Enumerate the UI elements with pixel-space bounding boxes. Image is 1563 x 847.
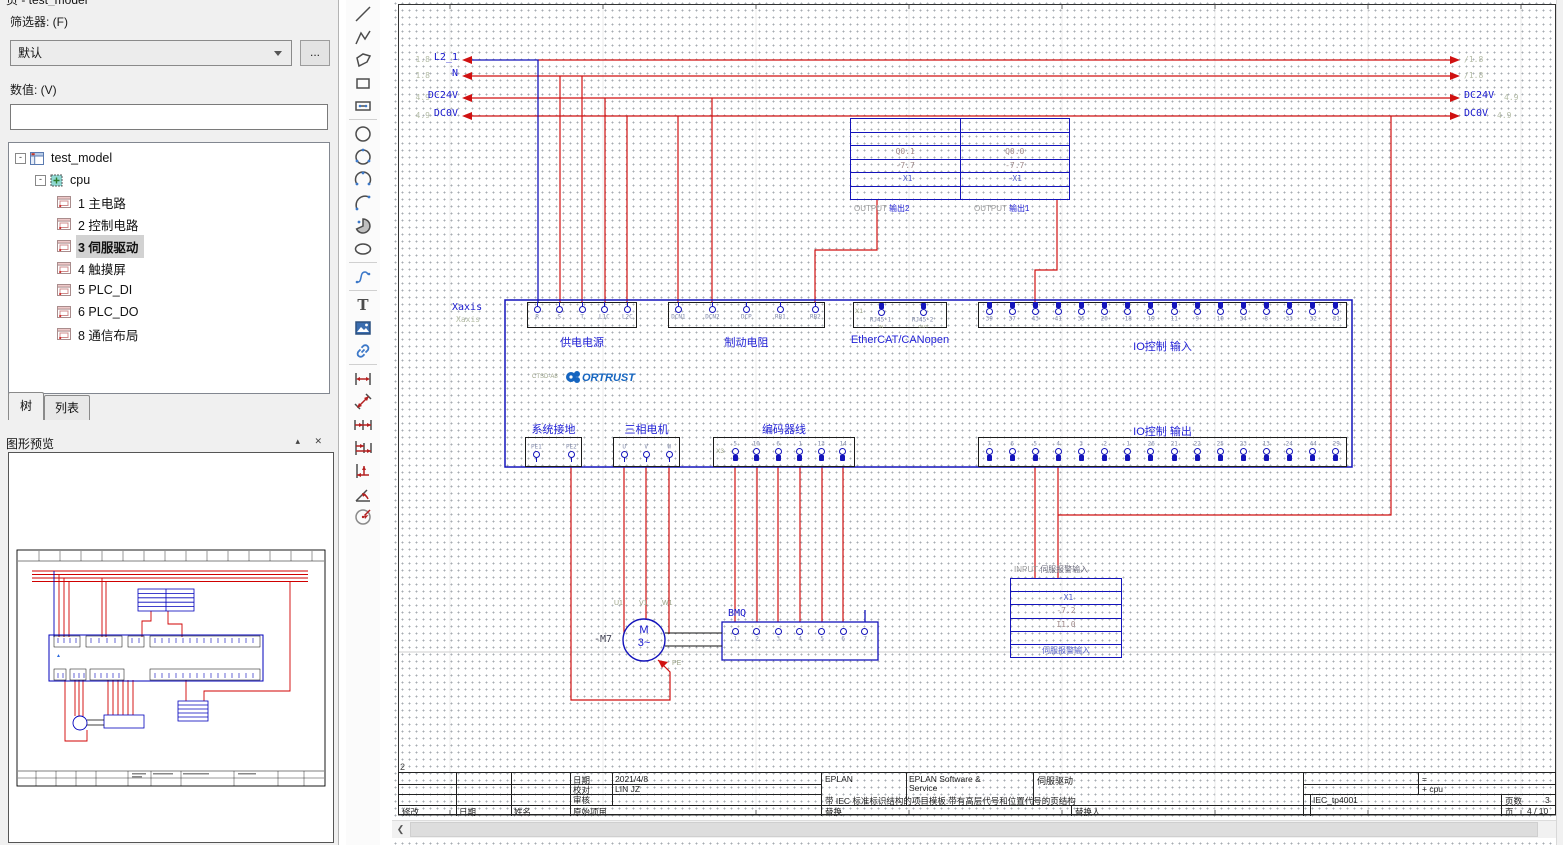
terminal[interactable]: 6 — [771, 440, 785, 461]
preview-panel-header: 图形预览 ▴ ✕ — [0, 434, 338, 452]
tree-item-page-6[interactable]: 6 PLC_DO — [15, 301, 329, 323]
terminal[interactable]: 1 — [728, 628, 742, 643]
terminal[interactable]: 5 — [1028, 440, 1042, 461]
terminal[interactable]: PE2 — [564, 443, 578, 462]
tree-item-page-4[interactable]: 4 触摸屏 — [15, 257, 329, 279]
terminal[interactable]: 18 — [1121, 302, 1135, 323]
schematic-canvas[interactable]: 1.8 1.8 4.9 4.9 L2_1 N DC24V DC0V /1.8 /… — [392, 0, 1563, 845]
gear-logo-icon — [564, 369, 582, 385]
terminal[interactable]: 2 — [1098, 440, 1112, 461]
plc-device: -7.7 — [851, 160, 960, 174]
terminal[interactable]: 10 — [1213, 302, 1227, 323]
terminal[interactable]: 13 — [814, 440, 828, 461]
tab-tree[interactable]: 树 — [8, 392, 44, 420]
potential-ref: 4.9 — [1497, 111, 1511, 120]
terminal[interactable]: 10 — [750, 440, 764, 461]
terminal-strip-io-input: 393743413520181911910348333231 — [978, 302, 1347, 323]
tool-image-icon[interactable] — [350, 316, 376, 339]
value-label: 数值: (V) — [10, 81, 57, 98]
tool-polyline-icon[interactable] — [350, 25, 376, 48]
terminal[interactable]: 6 — [1005, 440, 1019, 461]
terminal[interactable]: L1C — [598, 302, 612, 321]
structure-icon — [50, 174, 63, 187]
terminal-strip-encoder-cable: 510611314 — [713, 440, 855, 461]
tree-item-cpu[interactable]: - cpu — [15, 169, 329, 191]
terminal[interactable]: 7 — [982, 440, 996, 461]
terminal[interactable]: 26 — [1144, 440, 1158, 461]
terminal[interactable]: T — [575, 302, 589, 321]
terminal[interactable]: 19 — [1144, 302, 1158, 323]
terminal[interactable]: 9 — [1190, 302, 1204, 323]
terminal[interactable]: RB2 — [808, 302, 822, 321]
tool-polygon-icon[interactable] — [350, 48, 376, 71]
brand-logo: ORTRUST — [564, 368, 635, 386]
potential-label-dc0v[interactable]: DC0V — [406, 108, 458, 119]
preview-thumbnail: ▲ — [9, 453, 333, 842]
tool-text-icon[interactable]: T — [350, 293, 376, 316]
filter-dropdown-value: 默认 — [18, 46, 42, 60]
potential-ref: /1.8 — [1464, 55, 1483, 64]
potential-label-n[interactable]: N — [406, 68, 458, 79]
plc-terminal: -X1 — [961, 173, 1070, 187]
tool-dimension-aligned-icon[interactable] — [350, 390, 376, 413]
value-input[interactable] — [10, 104, 328, 130]
terminal-strip-brake: DCN1DCN2DCPRB1RB2 — [668, 302, 825, 321]
terminal[interactable]: 2 — [750, 628, 764, 643]
terminal[interactable]: 3 — [1075, 440, 1089, 461]
terminal[interactable]: 7 — [858, 628, 872, 643]
terminal[interactable]: 31 — [1329, 302, 1343, 323]
graphics-toolbar: T — [346, 0, 380, 845]
terminal[interactable]: PE1 — [529, 443, 543, 462]
terminal[interactable]: 33 — [1283, 302, 1297, 323]
terminal[interactable]: 35 — [1075, 302, 1089, 323]
tool-spline-icon[interactable] — [350, 265, 376, 288]
terminal[interactable]: 4 — [793, 628, 807, 643]
terminal[interactable]: 5 — [815, 628, 829, 643]
tool-dimension-linear-icon[interactable] — [350, 367, 376, 390]
plc-input-block[interactable]: -X1 -7.2 I1.0 伺服报警输入 — [1010, 578, 1122, 658]
terminal[interactable]: DCP — [740, 302, 754, 321]
plc-device: -7.2 — [1011, 605, 1121, 618]
tool-circle-3-point-icon[interactable] — [350, 145, 376, 168]
potential-label-dc24v[interactable]: DC24V — [406, 90, 458, 101]
plc-output-label: OUTPUT 输出2 — [854, 203, 909, 214]
tab-list[interactable]: 列表 — [44, 395, 90, 420]
page-tree: - test_model - cpu 1 主电路 2 控制电路 3 伺服驱动 4… — [8, 142, 330, 394]
plc-output-block[interactable]: Q0.1 -7.7 -X1 Q0.0 -7.7 -X1 — [850, 118, 1070, 200]
connector-title: 编码器线 — [713, 421, 855, 437]
potential-label-dc0v-right[interactable]: DC0V — [1464, 108, 1488, 119]
terminal[interactable]: L2C — [620, 302, 634, 321]
connector-title: 制动电阻 — [668, 334, 825, 350]
filter-dropdown[interactable]: 默认 — [10, 40, 292, 66]
plc-terminal: -X1 — [851, 173, 960, 187]
terminal[interactable]: 1 — [793, 440, 807, 461]
motor-symbol-text: M3~ — [632, 624, 656, 650]
title-block: 日期 2021/4/8 校对 LIN JZ 审核 修改 日期 姓名 原始项目 E… — [398, 772, 1556, 815]
tool-dimension-offset-icon[interactable] — [350, 459, 376, 482]
page-icon — [57, 284, 71, 296]
plc-address: I1.0 — [1011, 619, 1121, 632]
tool-arc-3-point-icon[interactable] — [350, 168, 376, 191]
tool-dimension-radius-icon[interactable] — [350, 505, 376, 528]
motor-wire-label: V1 — [639, 600, 648, 607]
terminal[interactable]: 37 — [1005, 302, 1019, 323]
filter-label: 筛选器: (F) — [10, 13, 68, 30]
tree-item-page-8[interactable]: 8 通信布局 — [15, 323, 329, 345]
plc-output-label: OUTPUT 输出1 — [974, 203, 1029, 214]
terminal[interactable]: RB1 — [774, 302, 788, 321]
terminal[interactable]: DCN2 — [705, 302, 719, 321]
terminal[interactable]: 4 — [1051, 440, 1065, 461]
tool-dimension-baseline-icon[interactable] — [350, 436, 376, 459]
chevron-down-icon — [274, 51, 282, 56]
tool-dimension-angle-icon[interactable] — [350, 482, 376, 505]
horizontal-scrollbar[interactable]: ❮ — [392, 820, 1556, 838]
terminal[interactable]: 23 — [1236, 440, 1250, 461]
terminal[interactable]: 44 — [1306, 440, 1320, 461]
terminal[interactable]: S — [553, 302, 567, 321]
axis-label[interactable]: Xaxis — [452, 302, 482, 313]
plc-input-header: INPUT 伺服报警输入 — [1014, 564, 1088, 575]
tool-rectangle-icon[interactable] — [350, 71, 376, 94]
tool-sector-icon[interactable] — [350, 214, 376, 237]
motor-pe-label: PE — [672, 660, 681, 667]
tool-rounded-rectangle-icon[interactable] — [350, 94, 376, 117]
plc-device: -7.7 — [961, 160, 1070, 174]
tool-hyperlink-icon[interactable] — [350, 339, 376, 362]
connector-title: 系统接地 — [525, 421, 582, 437]
tool-ellipse-icon[interactable] — [350, 237, 376, 260]
plc-address: Q0.0 — [961, 146, 1070, 160]
page-icon — [57, 262, 71, 274]
plc-terminal: -X1 — [1011, 592, 1121, 605]
tool-arc-icon[interactable] — [350, 191, 376, 214]
tree-item-page-3-selected[interactable]: 3 伺服驱动 — [15, 235, 329, 257]
connector-title: IO控制 输入 — [978, 338, 1347, 354]
terminal[interactable]: 21 — [1167, 440, 1181, 461]
tool-dimension-chain-icon[interactable] — [350, 413, 376, 436]
terminal[interactable]: 1 — [1121, 440, 1135, 461]
terminal[interactable]: 24 — [1283, 440, 1297, 461]
terminal[interactable]: 22 — [1190, 440, 1204, 461]
terminal-strip-encoder: 1234567 — [722, 628, 878, 643]
connector-title: 供电电源 — [527, 334, 637, 350]
terminal[interactable]: 13 — [1260, 440, 1274, 461]
terminal[interactable]: 20 — [1098, 302, 1112, 323]
terminal[interactable]: DCN1 — [671, 302, 685, 321]
terminal[interactable]: 43 — [1028, 302, 1042, 323]
terminal[interactable]: 41 — [1051, 302, 1065, 323]
terminal-strip-ethercat: RJ45-1IN RJ45-2OUT — [864, 303, 940, 330]
terminal[interactable]: R — [530, 302, 544, 321]
potential-ref: 4.9 — [1504, 93, 1518, 102]
filter-more-button[interactable]: ... — [300, 40, 330, 66]
preview-panel-buttons[interactable]: ▴ ✕ — [295, 436, 328, 447]
connector-title: 三相电机 — [613, 421, 680, 437]
pages-navigator-panel: 页 - test_model 筛选器: (F) 默认 ... 数值: (V) -… — [0, 0, 339, 845]
terminal[interactable]: 3 — [771, 628, 785, 643]
terminal-strip-motor: UVW — [613, 443, 680, 462]
terminal[interactable]: 6 — [836, 628, 850, 643]
tree-item-page-5[interactable]: 5 PLC_DI — [15, 279, 329, 301]
tree-item-page-1[interactable]: 1 主电路 — [15, 191, 329, 213]
potential-label-l2-1[interactable]: L2_1 — [406, 52, 458, 63]
potential-ref: /1.8 — [1464, 71, 1483, 80]
rj45-terminal[interactable]: RJ45-1IN — [864, 303, 898, 330]
terminal-strip-power: RSTL1CL2C — [527, 302, 637, 321]
rj45-terminal[interactable]: RJ45-2OUT — [906, 303, 940, 330]
page-icon — [57, 196, 71, 208]
terminal[interactable]: 14 — [836, 440, 850, 461]
potential-label-dc24v-right[interactable]: DC24V — [1464, 90, 1494, 101]
terminal-strip-io-output: 7654321262122252313244429 — [978, 440, 1347, 461]
tool-circle-icon[interactable] — [350, 122, 376, 145]
svg-text:▲: ▲ — [56, 653, 61, 659]
terminal[interactable]: 32 — [1306, 302, 1320, 323]
graphic-preview: ▲ — [8, 452, 334, 843]
motor-wire-label: U1 — [614, 600, 623, 607]
terminal[interactable]: 11 — [1167, 302, 1181, 323]
connector-designator: X1 — [855, 308, 863, 315]
terminal[interactable]: 39 — [982, 302, 996, 323]
page-icon — [57, 328, 71, 340]
connector-title: EtherCAT/CANopen — [833, 334, 967, 346]
grid-column-label: 2 — [400, 762, 405, 772]
terminal[interactable]: 34 — [1236, 302, 1250, 323]
scroll-left-icon[interactable]: ❮ — [392, 821, 409, 838]
tree-item-page-2[interactable]: 2 控制电路 — [15, 213, 329, 235]
axis-sub-label: Xaxis — [456, 315, 480, 324]
horizontal-scrollbar-thumb[interactable] — [410, 822, 1538, 837]
plc-address: Q0.1 — [851, 146, 960, 160]
vertical-scrollbar[interactable] — [1556, 0, 1563, 845]
terminal[interactable]: V — [640, 443, 654, 462]
page-icon — [57, 218, 71, 230]
plc-function-text: 伺服报警输入 — [1011, 645, 1121, 657]
panel-title-clipped: 页 - test_model — [0, 0, 338, 6]
terminal[interactable]: 5 — [728, 440, 742, 461]
terminal[interactable]: W — [662, 443, 676, 462]
drive-model: CTSD-A8 — [532, 374, 558, 380]
tool-line-icon[interactable] — [350, 2, 376, 25]
svg-text:T: T — [357, 296, 369, 314]
terminal[interactable]: U — [617, 443, 631, 462]
page-icon — [57, 240, 71, 252]
project-icon — [30, 152, 44, 165]
terminal[interactable]: 29 — [1329, 440, 1343, 461]
terminal[interactable]: 8 — [1260, 302, 1274, 323]
preview-panel-title: 图形预览 — [6, 435, 54, 452]
motor-wire-label: W1 — [662, 600, 673, 607]
tree-item-project[interactable]: - test_model — [15, 147, 329, 169]
terminal-strip-ground: PE1PE2 — [525, 443, 582, 462]
motor-tag[interactable]: -M7 — [594, 634, 612, 645]
terminal[interactable]: 25 — [1213, 440, 1227, 461]
page-icon — [57, 306, 71, 318]
encoder-tag[interactable]: BMQ — [728, 608, 746, 619]
